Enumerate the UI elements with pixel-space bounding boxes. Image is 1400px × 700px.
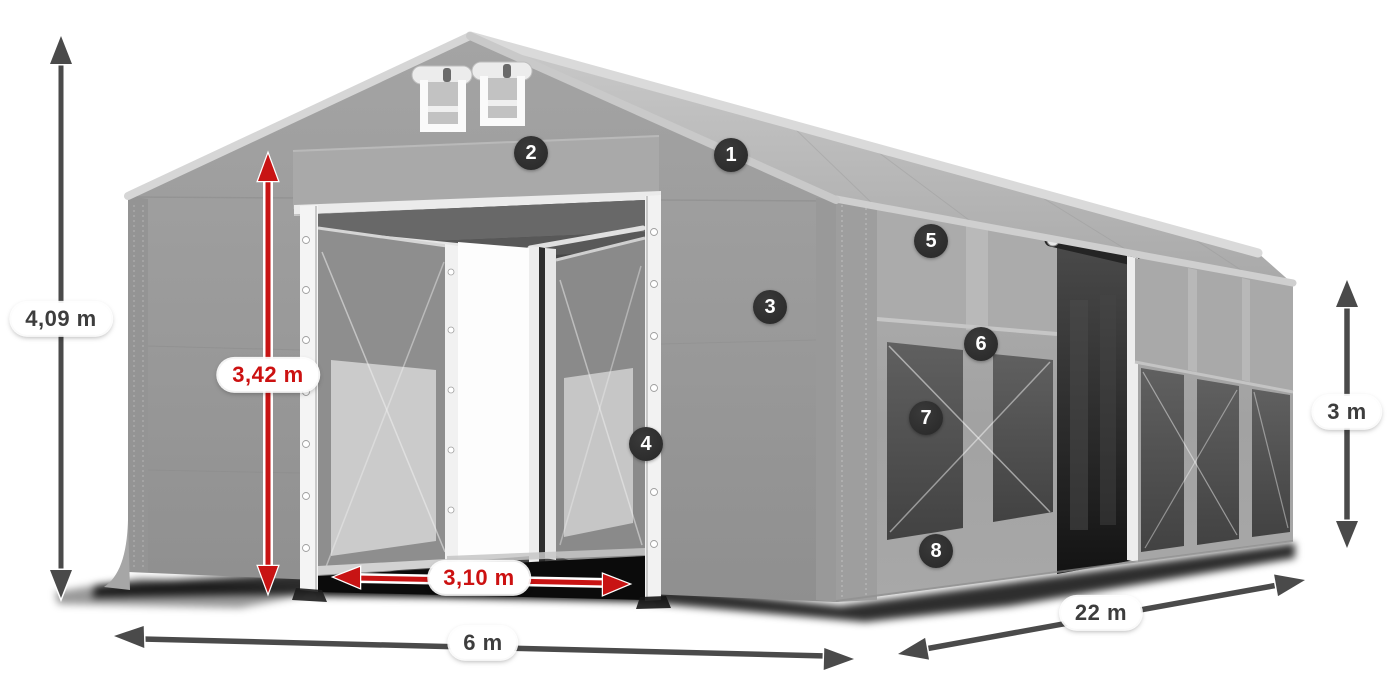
side-window — [887, 342, 963, 540]
hotspot-5[interactable]: 5 — [914, 224, 948, 258]
gable-vent-left — [412, 66, 472, 132]
dimension-label-entrance-height: 3,42 m — [218, 359, 318, 391]
side-window — [1197, 379, 1239, 545]
left-door-panel — [318, 228, 447, 586]
door-mesh-window — [331, 360, 436, 556]
gable-vent-right — [472, 62, 532, 126]
dimension-label-side-height: 3 m — [1313, 396, 1380, 428]
tent-product-diagram: 4,09 m 3,42 m 3,10 m 6 m 22 m 3 m 1 2 3 … — [0, 0, 1400, 700]
dimension-label-front-width: 6 m — [449, 627, 516, 659]
corner-skirt — [104, 520, 130, 590]
hotspot-1[interactable]: 1 — [714, 138, 748, 172]
side-window — [1141, 368, 1184, 552]
hotspot-6[interactable]: 6 — [964, 327, 998, 361]
right-door-panel — [556, 238, 645, 584]
see-through-gap — [458, 242, 531, 562]
entrance-interior — [292, 195, 671, 609]
dimension-label-entrance-width: 3,10 m — [429, 562, 529, 594]
tent-illustration — [0, 0, 1400, 700]
hotspot-4[interactable]: 4 — [629, 427, 663, 461]
dimension-label-total-height: 4,09 m — [11, 303, 111, 335]
hotspot-3[interactable]: 3 — [753, 290, 787, 324]
open-side-bay — [1057, 243, 1135, 574]
door-mesh-window — [564, 368, 633, 537]
hotspot-2[interactable]: 2 — [514, 136, 548, 170]
dimension-label-side-length: 22 m — [1061, 597, 1141, 629]
hotspot-7[interactable]: 7 — [909, 401, 943, 435]
side-window — [993, 354, 1053, 522]
hotspot-8[interactable]: 8 — [919, 534, 953, 568]
